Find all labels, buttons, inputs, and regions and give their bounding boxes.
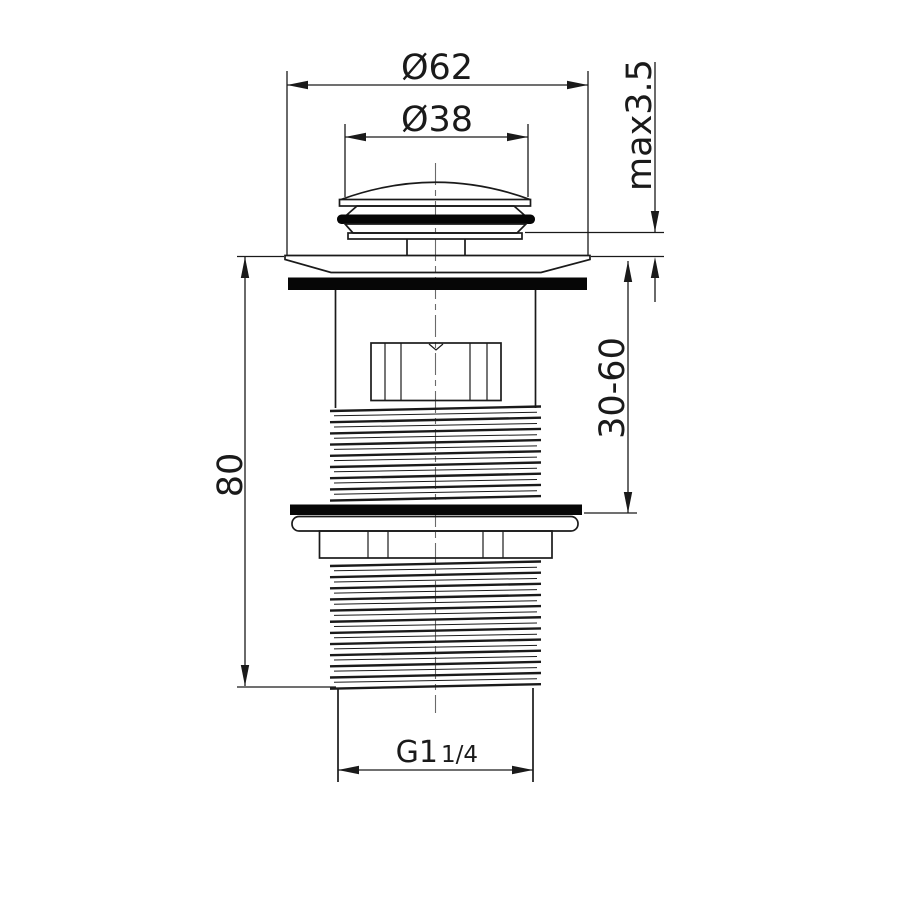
max35-label: max3.5 [620,59,660,191]
dimension-clamp-range: 30-60 [584,261,637,513]
dimension-thread-size: G1 1/4 [338,735,533,774]
clamp-range-label: 30-60 [593,337,633,439]
dimension-length80: 80 [211,257,336,688]
lower-thread [330,562,541,689]
dimension-max35: max3.5 [525,59,664,302]
length80-label: 80 [211,453,251,498]
dia62-label: Ø62 [401,48,473,88]
dia38-label: Ø38 [401,100,473,140]
thread-size-label-fraction: 1/4 [441,742,478,768]
upper-thread [330,407,541,501]
technical-drawing-canvas: Ø62 Ø38 max3.5 30-60 80 [0,0,900,900]
bottom-gasket [290,505,582,516]
o-ring-seal [337,215,535,225]
thread-size-label-main: G1 [396,735,438,770]
top-gasket [288,278,587,291]
flange [285,256,590,273]
